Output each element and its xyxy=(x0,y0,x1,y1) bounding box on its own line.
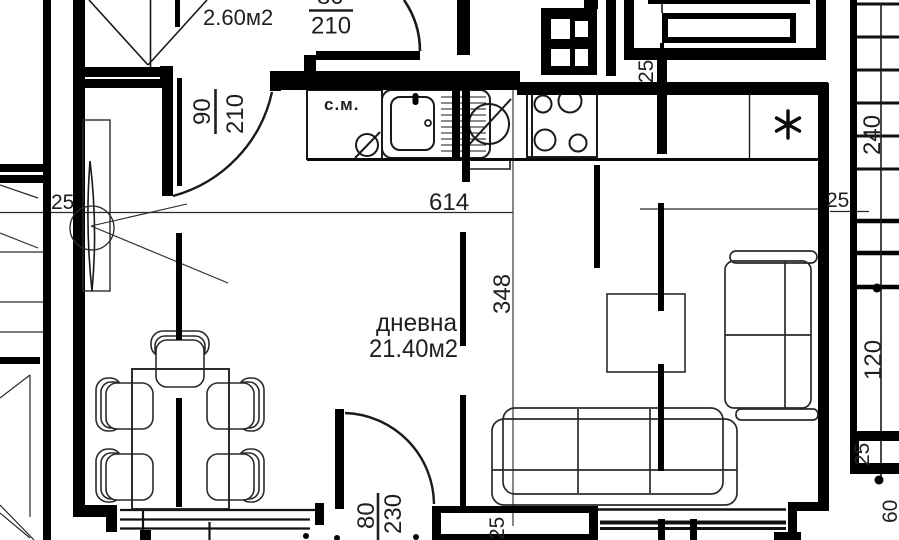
svg-text:25: 25 xyxy=(851,443,874,466)
svg-text:348: 348 xyxy=(489,274,516,314)
svg-text:25: 25 xyxy=(51,191,74,214)
svg-text:230: 230 xyxy=(380,494,407,534)
svg-text:25: 25 xyxy=(635,60,658,83)
svg-text:614: 614 xyxy=(429,189,469,216)
svg-text:21.40м2: 21.40м2 xyxy=(369,335,458,363)
svg-text:80: 80 xyxy=(317,0,344,10)
svg-text:120: 120 xyxy=(860,340,887,380)
svg-text:210: 210 xyxy=(222,94,249,134)
svg-text:2.60м2: 2.60м2 xyxy=(203,5,273,30)
svg-text:дневна: дневна xyxy=(376,309,457,337)
svg-text:60: 60 xyxy=(879,500,899,523)
svg-text:80: 80 xyxy=(353,502,380,529)
svg-text:240: 240 xyxy=(859,115,886,155)
svg-text:с.м.: с.м. xyxy=(324,95,359,114)
svg-text:210: 210 xyxy=(311,13,351,40)
svg-text:25: 25 xyxy=(486,517,509,540)
svg-text:90: 90 xyxy=(189,98,216,125)
svg-text:25: 25 xyxy=(826,189,849,212)
